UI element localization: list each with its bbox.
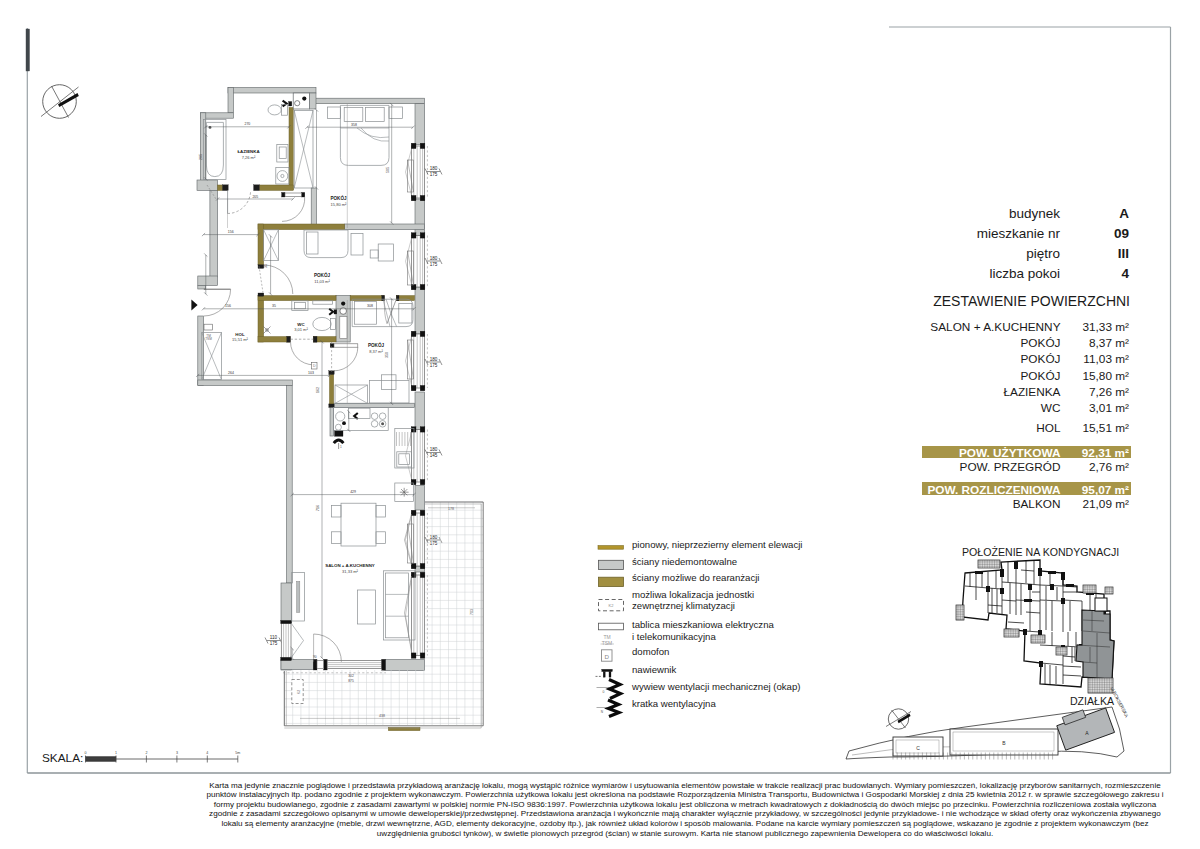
- svg-text:205: 205: [252, 195, 258, 199]
- svg-text:D: D: [604, 653, 609, 660]
- svg-text:3,01 m²: 3,01 m²: [294, 327, 308, 332]
- svg-text:ŁAZIENKA: ŁAZIENKA: [237, 149, 260, 154]
- svg-text:180: 180: [430, 256, 438, 261]
- svg-text:180: 180: [430, 447, 438, 452]
- svg-text:103: 103: [308, 371, 314, 375]
- svg-text:175: 175: [430, 262, 438, 267]
- svg-text:270: 270: [244, 122, 250, 126]
- svg-text:4: 4: [206, 751, 208, 755]
- svg-text:D: D: [313, 364, 316, 368]
- svg-text:350: 350: [385, 352, 389, 358]
- svg-text:TSM: TSM: [602, 640, 613, 646]
- svg-text:308: 308: [367, 304, 373, 308]
- svg-text:8,37 m²: 8,37 m²: [369, 349, 383, 354]
- svg-text:35: 35: [264, 264, 268, 268]
- svg-text:3: 3: [176, 751, 178, 755]
- svg-text:505: 505: [386, 167, 390, 173]
- svg-text:716: 716: [316, 505, 320, 511]
- svg-text:156: 156: [228, 230, 234, 234]
- svg-text:POKÓJ: POKÓJ: [330, 194, 347, 201]
- svg-text:0: 0: [85, 751, 87, 755]
- svg-text:205: 205: [199, 154, 203, 160]
- svg-text:7,26 m²: 7,26 m²: [242, 155, 256, 160]
- svg-text:180: 180: [430, 535, 438, 540]
- svg-text:438: 438: [379, 714, 385, 718]
- svg-text:0: 0: [603, 690, 605, 694]
- svg-text:N: N: [601, 710, 604, 714]
- svg-text:703: 703: [470, 609, 474, 615]
- svg-text:156: 156: [225, 304, 231, 308]
- svg-text:K2: K2: [297, 690, 301, 694]
- svg-text:TM: TM: [603, 634, 610, 640]
- svg-text:110: 110: [270, 635, 278, 640]
- svg-text:POKÓJ: POKÓJ: [368, 341, 385, 348]
- svg-text:15,80 m²: 15,80 m²: [331, 202, 347, 207]
- svg-text:5m: 5m: [235, 751, 240, 755]
- svg-text:175: 175: [270, 641, 278, 646]
- svg-text:180: 180: [430, 357, 438, 362]
- svg-text:C: C: [916, 745, 920, 751]
- svg-text:HOL: HOL: [235, 332, 245, 337]
- svg-text:TSM: TSM: [205, 337, 212, 341]
- svg-text:875: 875: [348, 679, 354, 683]
- svg-text:2: 2: [145, 751, 147, 755]
- svg-text:358: 358: [351, 123, 357, 127]
- svg-text:429: 429: [350, 490, 356, 494]
- svg-text:15,51 m²: 15,51 m²: [232, 337, 248, 342]
- svg-text:35: 35: [272, 304, 276, 308]
- svg-text:1: 1: [340, 445, 342, 449]
- svg-text:SALON + A.KUCHENNY: SALON + A.KUCHENNY: [325, 563, 375, 568]
- svg-text:WC: WC: [297, 322, 305, 327]
- svg-text:31,33 m²: 31,33 m²: [342, 569, 358, 574]
- svg-text:264: 264: [228, 371, 234, 375]
- svg-text:175: 175: [430, 363, 438, 368]
- svg-text:POKÓJ: POKÓJ: [314, 271, 331, 278]
- svg-text:302: 302: [348, 674, 354, 678]
- svg-text:145: 145: [430, 453, 438, 458]
- svg-text:175: 175: [430, 172, 438, 177]
- svg-text:1: 1: [115, 751, 117, 755]
- svg-text:162: 162: [316, 387, 320, 393]
- svg-text:11,03 m²: 11,03 m²: [314, 279, 330, 284]
- svg-text:K2: K2: [609, 603, 615, 608]
- svg-text:180: 180: [430, 166, 438, 171]
